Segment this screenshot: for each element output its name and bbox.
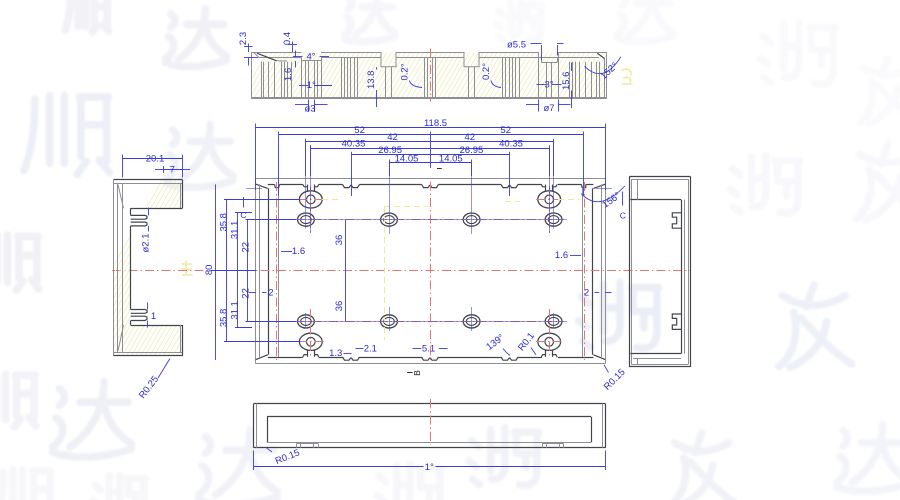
svg-text:42: 42 xyxy=(465,132,476,143)
svg-text:1.6: 1.6 xyxy=(283,68,294,81)
svg-text:4°: 4° xyxy=(306,52,315,63)
svg-text:42: 42 xyxy=(387,132,398,143)
svg-text:13.8: 13.8 xyxy=(366,71,377,90)
svg-text:26.95: 26.95 xyxy=(460,145,484,156)
svg-text:52: 52 xyxy=(500,125,511,136)
svg-text:40.35: 40.35 xyxy=(342,139,366,150)
svg-text:22: 22 xyxy=(240,288,251,299)
svg-text:36: 36 xyxy=(334,235,345,246)
svg-text:0.2°: 0.2° xyxy=(400,63,411,80)
svg-text:14.05: 14.05 xyxy=(439,154,463,165)
svg-text:36: 36 xyxy=(334,301,345,312)
svg-text:R0.25: R0.25 xyxy=(137,374,161,401)
svg-text:0.4: 0.4 xyxy=(282,32,293,45)
svg-text:1.6: 1.6 xyxy=(555,250,568,261)
svg-text:80: 80 xyxy=(204,265,215,276)
svg-text:52: 52 xyxy=(354,125,365,136)
svg-text:0.2°: 0.2° xyxy=(481,63,492,80)
svg-text:C: C xyxy=(240,210,246,220)
svg-text:2.1: 2.1 xyxy=(364,343,377,354)
svg-text:ø5.5: ø5.5 xyxy=(507,40,526,51)
svg-text:1: 1 xyxy=(151,311,156,322)
svg-text:ø3: ø3 xyxy=(304,104,315,115)
svg-text:31.1: 31.1 xyxy=(229,221,240,240)
svg-text:3°: 3° xyxy=(544,79,553,90)
svg-text:156°: 156° xyxy=(600,190,623,211)
svg-text:1°: 1° xyxy=(307,80,316,91)
svg-text:20.1: 20.1 xyxy=(146,153,165,164)
svg-text:R0.15: R0.15 xyxy=(602,367,628,393)
svg-text:152°: 152° xyxy=(598,60,620,81)
svg-text:31.1: 31.1 xyxy=(229,301,240,320)
svg-text:2.3: 2.3 xyxy=(238,32,249,45)
svg-text:2: 2 xyxy=(268,287,273,298)
svg-text:40.35: 40.35 xyxy=(499,139,523,150)
svg-text:R0.1: R0.1 xyxy=(516,331,537,354)
svg-text:B: B xyxy=(412,370,422,376)
svg-text:15.6: 15.6 xyxy=(561,72,572,91)
svg-text:1.6: 1.6 xyxy=(292,246,305,257)
svg-text:ø7: ø7 xyxy=(543,103,554,114)
svg-text:14.05: 14.05 xyxy=(395,154,419,165)
svg-text:118.5: 118.5 xyxy=(424,118,447,129)
svg-text:5.1: 5.1 xyxy=(422,343,435,354)
svg-text:35.8: 35.8 xyxy=(218,213,229,232)
svg-text:R0.15: R0.15 xyxy=(274,447,302,467)
svg-text:2: 2 xyxy=(584,287,589,298)
svg-text:7: 7 xyxy=(170,164,175,175)
svg-text:1.3: 1.3 xyxy=(329,348,342,359)
svg-text:1°: 1° xyxy=(425,462,434,473)
svg-text:35.8: 35.8 xyxy=(218,309,229,328)
svg-text:ø2.1: ø2.1 xyxy=(141,233,152,252)
svg-text:C: C xyxy=(620,211,626,221)
svg-text:22: 22 xyxy=(240,242,251,253)
